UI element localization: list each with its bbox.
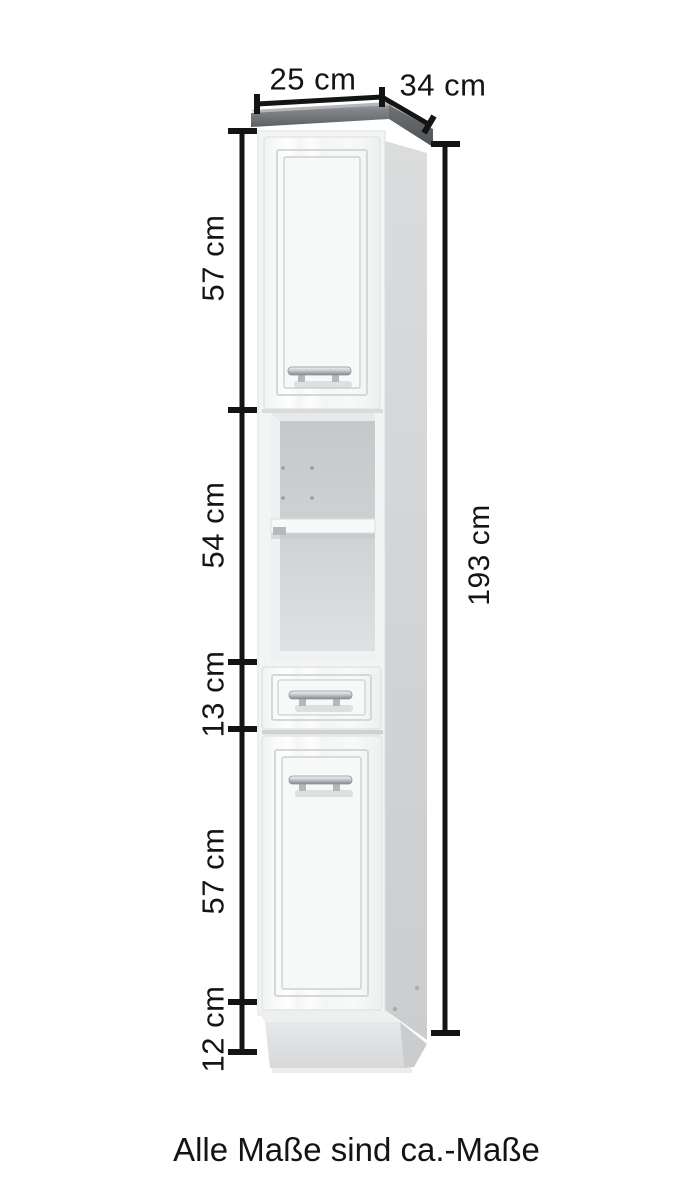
- drawer-gap: [262, 730, 383, 735]
- shelf-pin-hole: [281, 466, 285, 470]
- upper-door: [264, 137, 380, 409]
- shelf-pin-hole: [310, 496, 314, 500]
- floor-shadow: [272, 1068, 412, 1073]
- niche-top-inner: [271, 413, 375, 421]
- shelf-shadow: [271, 533, 375, 539]
- shelf: [271, 519, 375, 533]
- plinth-front: [265, 1022, 404, 1068]
- product-dimension-diagram: 25 cm 34 cm 57 cm 54 cm 13 cm 57 cm 12 c…: [0, 0, 687, 1181]
- shelf-pin-hole: [310, 466, 314, 470]
- dim-label-open-compartment: 54 cm: [198, 482, 229, 569]
- dim-label-plinth: 12 cm: [198, 986, 229, 1073]
- dim-label-drawer: 13 cm: [198, 651, 229, 738]
- drawer: [262, 667, 381, 729]
- cabinet-side-panel: [385, 141, 427, 1040]
- caption-approx-measures: Alle Maße sind ca.-Maße: [0, 1131, 687, 1169]
- side-hole: [393, 1007, 397, 1011]
- side-hole: [415, 986, 419, 990]
- plinth-bevel: [258, 1010, 400, 1022]
- shelf-pin-hole: [281, 496, 285, 500]
- cabinet-illustration: [0, 0, 687, 1181]
- lower-door: [262, 736, 382, 1010]
- dim-label-top-width: 25 cm: [270, 64, 357, 95]
- open-compartment: [271, 413, 375, 662]
- shelf-bracket: [273, 527, 286, 535]
- upper-door-gap: [262, 409, 383, 413]
- niche-bottom-inner: [271, 651, 375, 662]
- dim-label-upper-door: 57 cm: [198, 215, 229, 302]
- dim-label-lower-door: 57 cm: [198, 828, 229, 915]
- dim-label-top-depth: 34 cm: [400, 70, 487, 101]
- dim-label-total-height: 193 cm: [465, 504, 495, 605]
- cabinet: [251, 102, 433, 1073]
